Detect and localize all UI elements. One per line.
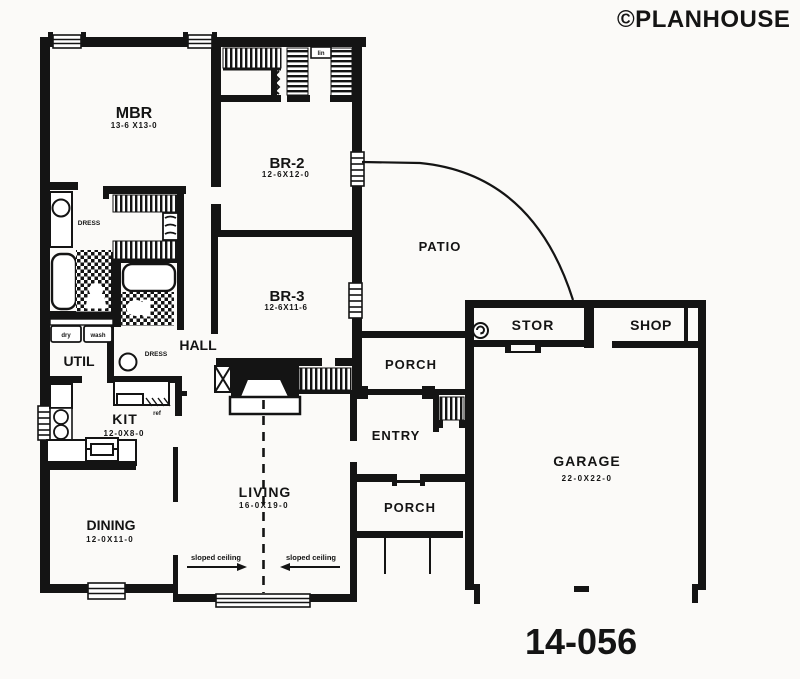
svg-text:14-056: 14-056 <box>525 621 637 662</box>
svg-text:16-0X19-0: 16-0X19-0 <box>239 501 289 510</box>
svg-text:PORCH: PORCH <box>384 500 436 515</box>
svg-text:DRESS: DRESS <box>145 351 168 358</box>
svg-text:ENTRY: ENTRY <box>372 428 421 443</box>
svg-text:KIT: KIT <box>112 411 138 427</box>
svg-text:ref: ref <box>153 411 162 417</box>
svg-text:sloped ceiling: sloped ceiling <box>286 553 336 562</box>
svg-text:wash: wash <box>89 333 105 339</box>
svg-text:DINING: DINING <box>87 517 136 533</box>
svg-text:LIVING: LIVING <box>239 484 292 500</box>
svg-text:PATIO: PATIO <box>419 239 462 254</box>
svg-text:12-0X11-0: 12-0X11-0 <box>86 535 134 544</box>
svg-text:SHOP: SHOP <box>630 317 672 333</box>
svg-text:©PLANHOUSE: ©PLANHOUSE <box>617 6 790 33</box>
svg-text:13-6 X13-0: 13-6 X13-0 <box>111 121 158 130</box>
svg-text:12-6X12-0: 12-6X12-0 <box>262 170 310 179</box>
svg-text:lin: lin <box>318 51 325 57</box>
svg-text:sloped ceiling: sloped ceiling <box>191 553 241 562</box>
svg-text:UTIL: UTIL <box>63 353 95 369</box>
svg-text:PORCH: PORCH <box>385 357 437 372</box>
svg-text:MBR: MBR <box>116 105 153 122</box>
svg-text:GARAGE: GARAGE <box>553 453 620 469</box>
svg-text:HALL: HALL <box>179 337 217 353</box>
svg-text:DRESS: DRESS <box>78 220 101 227</box>
svg-text:dry: dry <box>61 333 71 339</box>
svg-text:STOR: STOR <box>512 317 555 333</box>
svg-text:22-0X22-0: 22-0X22-0 <box>562 474 613 483</box>
svg-text:12-6X11-6: 12-6X11-6 <box>264 303 307 312</box>
svg-text:12-0X8-0: 12-0X8-0 <box>104 429 145 438</box>
